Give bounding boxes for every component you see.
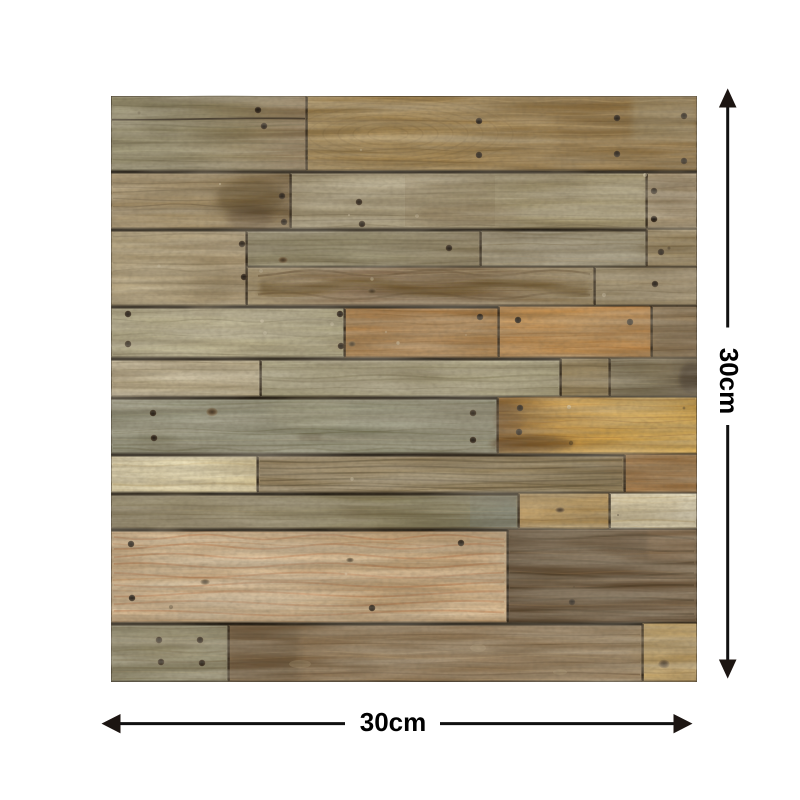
svg-text:30cm: 30cm (360, 707, 427, 737)
svg-text:30cm: 30cm (714, 348, 744, 415)
